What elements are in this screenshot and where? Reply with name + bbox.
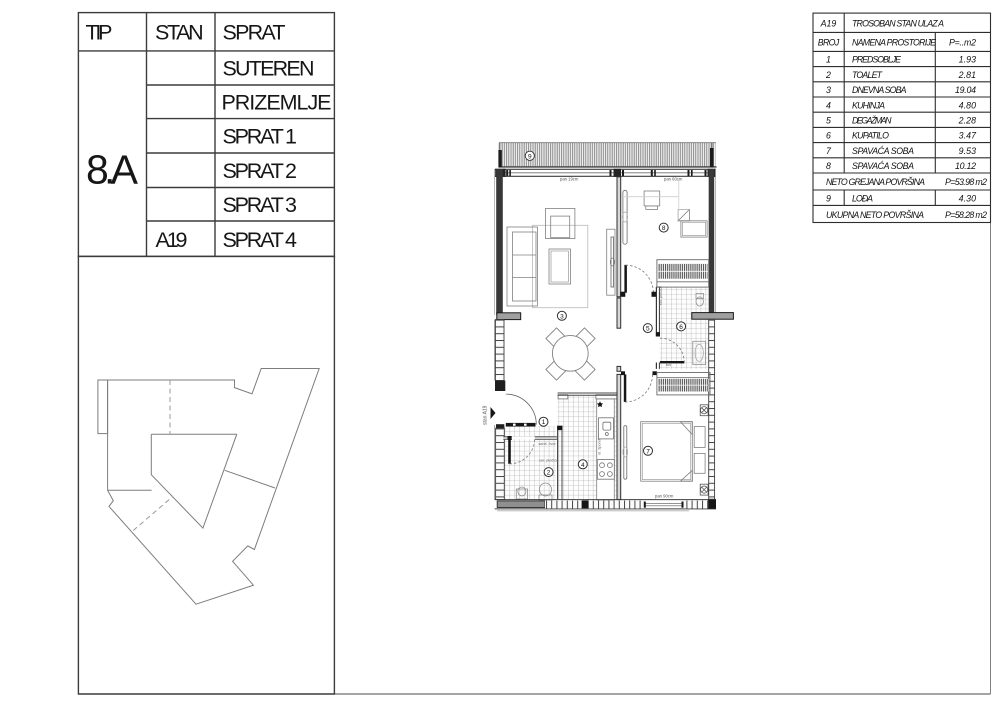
svg-text:ker. pločice: ker. pločice (659, 286, 663, 305)
svg-text:tuš: tuš (666, 363, 671, 367)
svg-text:PREDSOBLJE: PREDSOBLJE (852, 55, 901, 65)
svg-text:el. šporet: el. šporet (598, 438, 602, 455)
svg-text:BROJ: BROJ (818, 38, 840, 48)
svg-text:SPAVAĆA SOBA: SPAVAĆA SOBA (852, 161, 914, 171)
svg-text:SPRAT 1: SPRAT 1 (223, 125, 298, 149)
svg-text:1.93: 1.93 (959, 55, 976, 65)
svg-text:DNEVNA SOBA: DNEVNA SOBA (852, 85, 907, 95)
svg-text:P=58.28 m2: P=58.28 m2 (945, 210, 987, 220)
svg-text:8: 8 (662, 225, 666, 232)
svg-text:STAN: STAN (155, 21, 204, 45)
svg-text:1: 1 (826, 55, 831, 65)
svg-text:TIP: TIP (86, 21, 113, 45)
svg-text:4: 4 (826, 100, 831, 110)
svg-text:SPRAT 2: SPRAT 2 (223, 159, 298, 183)
svg-text:6: 6 (679, 324, 683, 331)
svg-text:2.81: 2.81 (958, 70, 976, 80)
svg-text:9: 9 (826, 194, 831, 204)
svg-text:P=..m2: P=..m2 (949, 38, 976, 48)
svg-text:6: 6 (826, 131, 831, 141)
svg-text:8.A: 8.A (86, 147, 139, 193)
svg-text:2: 2 (547, 470, 551, 477)
svg-text:5: 5 (646, 326, 650, 333)
svg-text:PRIZEMLJE: PRIZEMLJE (222, 91, 332, 115)
svg-text:NAMENA PROSTORIJE: NAMENA PROSTORIJE (852, 38, 936, 48)
svg-text:8: 8 (826, 161, 831, 171)
svg-text:1: 1 (542, 419, 546, 426)
svg-text:SPAVAĆA SOBA: SPAVAĆA SOBA (852, 146, 914, 156)
svg-text:KUHINJA: KUHINJA (852, 100, 885, 110)
svg-text:A19: A19 (156, 228, 188, 252)
svg-text:4: 4 (581, 462, 585, 469)
svg-text:DEGAŽMAN: DEGAŽMAN (852, 116, 892, 126)
svg-text:4.30: 4.30 (959, 194, 976, 204)
svg-text:9: 9 (528, 153, 532, 160)
svg-text:2.28: 2.28 (958, 116, 976, 126)
svg-text:TROSOBAN STAN ULAZ A: TROSOBAN STAN ULAZ A (852, 18, 944, 28)
svg-text:3.47: 3.47 (959, 131, 977, 141)
svg-text:19.04: 19.04 (955, 85, 976, 95)
svg-text:P=53.98 m2: P=53.98 m2 (945, 177, 987, 187)
svg-text:3: 3 (826, 85, 831, 95)
svg-text:9.53: 9.53 (959, 146, 976, 156)
svg-text:4.80: 4.80 (959, 100, 976, 110)
svg-text:10.12: 10.12 (955, 161, 976, 171)
svg-text:KUPATILO: KUPATILO (852, 131, 889, 141)
svg-text:2: 2 (825, 70, 831, 80)
svg-text:SUTEREN: SUTEREN (223, 57, 315, 81)
svg-text:7: 7 (646, 448, 650, 455)
svg-text:UKUPNA NETO POVRŠINA: UKUPNA NETO POVRŠINA (826, 210, 924, 220)
svg-text:pan 90cm: pan 90cm (655, 494, 674, 499)
svg-text:SPRAT: SPRAT (223, 21, 286, 45)
svg-text:cer. pločice: cer. pločice (539, 458, 558, 462)
svg-text:3: 3 (560, 313, 564, 320)
svg-text:LOĐA: LOĐA (852, 194, 873, 204)
svg-text:stan A19: stan A19 (483, 405, 489, 425)
svg-text:5: 5 (826, 116, 831, 126)
svg-text:SPRAT 4: SPRAT 4 (223, 228, 298, 252)
svg-text:A19: A19 (820, 18, 837, 28)
svg-text:pan 60cm: pan 60cm (664, 177, 683, 182)
svg-text:SPRAT 3: SPRAT 3 (223, 193, 298, 217)
svg-text:sanit. čvor: sanit. čvor (539, 442, 557, 446)
svg-text:NETO GREJANA POVRŠINA: NETO GREJANA POVRŠINA (826, 177, 925, 187)
svg-text:pan 19cm: pan 19cm (560, 176, 579, 181)
svg-text:TOALET: TOALET (852, 70, 883, 80)
